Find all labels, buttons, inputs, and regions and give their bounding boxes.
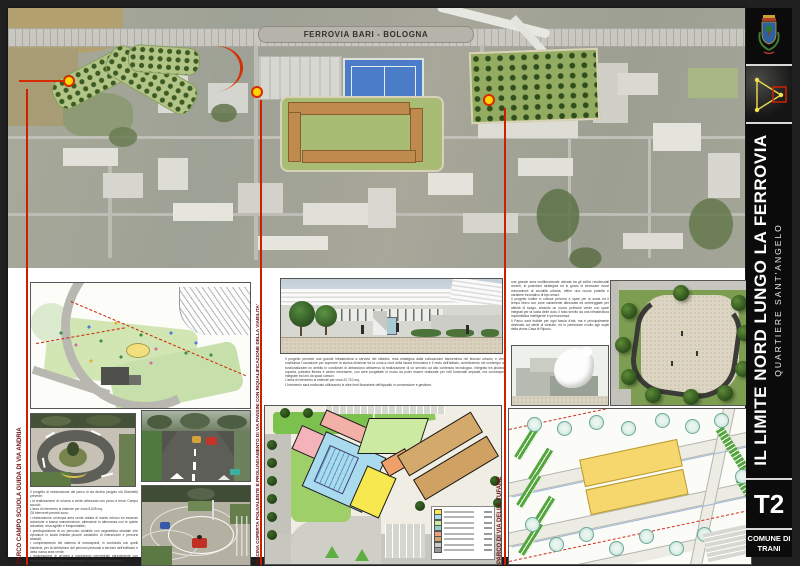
- tree-symbol: [621, 421, 636, 436]
- authority-name: COMUNE DI TRANI: [746, 530, 792, 557]
- tree-symbol: [639, 529, 654, 544]
- render-parco-tufare: [610, 280, 752, 406]
- text-block-piscina: Il progetto prevede una grande infrastru…: [285, 357, 504, 401]
- tree-symbol: [669, 541, 684, 556]
- title-block-sidebar: IL LIMITE NORD LUNGO LA FERROVIA QUARTIE…: [746, 8, 792, 557]
- aerial-photo: FERROVIA BARI - BOLOGNA: [8, 8, 745, 268]
- gravel-band: [512, 396, 609, 406]
- plan-parco-tufare-technical: [508, 408, 752, 565]
- plan-piscina-complex: [264, 405, 502, 565]
- tree: [621, 369, 637, 385]
- tree: [415, 501, 425, 511]
- mini-car-red: [206, 437, 217, 445]
- tree-symbol: [655, 413, 670, 428]
- legend-value-bar: [484, 511, 492, 513]
- legend-label-bar: [444, 511, 474, 513]
- tree-trunk: [300, 326, 302, 336]
- site-plan-campo-scuola: [30, 282, 251, 409]
- parking-row: [325, 406, 445, 414]
- tree: [267, 476, 277, 486]
- tree: [267, 440, 277, 450]
- legend-value-bar: [484, 549, 492, 551]
- person: [466, 325, 469, 334]
- legend-label-bar: [444, 527, 474, 529]
- tree-trunk: [325, 326, 327, 335]
- tree: [621, 303, 637, 319]
- legend-label-bar: [444, 538, 474, 540]
- presentation-board: FERROVIA BARI - BOLOGNA: [0, 0, 800, 566]
- tree: [41, 416, 71, 426]
- sheet: FERROVIA BARI - BOLOGNA: [8, 8, 745, 557]
- tree: [280, 408, 290, 418]
- building-montage: [258, 56, 342, 100]
- text-block-tufare: una grande area multifunzionale ubicata …: [511, 280, 609, 342]
- crest-box: [746, 8, 792, 64]
- courtyard-complex: [280, 96, 444, 172]
- legend-value-bar: [484, 538, 492, 540]
- section-label-piscina: PISCINA COPERTA POLIVALENTE E PROLUNGAME…: [253, 308, 262, 564]
- map-marker-1: [63, 75, 75, 87]
- tree-symbol: [557, 421, 572, 436]
- legend-label-bar: [444, 522, 474, 524]
- tree: [267, 512, 277, 522]
- palm-tree: [67, 442, 79, 456]
- drawing-statue-section: [511, 345, 609, 406]
- building-bar: [302, 150, 416, 163]
- tree: [267, 458, 277, 468]
- stair: [373, 311, 387, 335]
- tree-symbol: [685, 419, 700, 434]
- tree: [267, 494, 277, 504]
- photo-street-mini-cars: [141, 410, 251, 482]
- park-montage-tufare: [469, 48, 600, 124]
- tree: [673, 285, 689, 301]
- tree: [615, 337, 631, 353]
- legend-value-bar: [484, 516, 492, 518]
- sheet-title: IL LIMITE NORD LUNGO LA FERROVIA: [751, 124, 771, 476]
- render-piscina-elevation: [280, 278, 503, 354]
- tree-symbol: [609, 541, 624, 556]
- person: [361, 325, 364, 334]
- sheet-subtitle: QUARTIERE SANT'ANGELO: [773, 124, 783, 476]
- signage: [230, 469, 240, 475]
- legend-label-bar: [444, 533, 474, 535]
- tree-symbol: [549, 537, 564, 552]
- legend-label-bar: [444, 516, 474, 518]
- tree-symbol: [579, 527, 594, 542]
- light-pole: [212, 500, 214, 520]
- kids-car-blue: [160, 522, 170, 529]
- legend-label-bar: [444, 544, 474, 546]
- gravel-ground: [281, 337, 503, 354]
- locator-box: [746, 66, 792, 122]
- railway-banner: FERROVIA BARI - BOLOGNA: [258, 26, 474, 43]
- tree: [86, 415, 121, 426]
- plan-symbols: [31, 283, 251, 409]
- photo-roundabout: [30, 413, 136, 487]
- text-block-campo-scuola: Il progetto di realizzazione del parco d…: [30, 490, 138, 564]
- map-marker-3: [483, 94, 495, 106]
- mini-car-yellow: [192, 436, 201, 443]
- person: [681, 331, 683, 336]
- sheet-code: T2: [746, 480, 792, 528]
- trani-crest-icon: [754, 14, 784, 58]
- tree: [217, 415, 247, 429]
- tree: [645, 387, 661, 403]
- statue-head: [582, 347, 592, 357]
- red-connector-line: [19, 80, 69, 82]
- green-median: [142, 431, 162, 482]
- building-bar: [288, 112, 301, 162]
- tree: [267, 530, 277, 540]
- grass-patch: [188, 501, 213, 511]
- legend-label-bar: [444, 549, 474, 551]
- lane-dash: [192, 474, 195, 482]
- section-label-tufare: PARCO DI VIA DELLE TUFARE: [495, 460, 505, 564]
- building-bar: [288, 102, 410, 115]
- tree: [683, 389, 699, 405]
- locator-triangle-icon: [749, 70, 789, 118]
- legend-row: [434, 548, 492, 554]
- tree: [717, 385, 733, 401]
- legend-value-bar: [484, 544, 492, 546]
- tree: [315, 305, 337, 327]
- white-fence: [236, 516, 251, 556]
- tree-symbol: [589, 415, 604, 430]
- lane-dash: [193, 462, 196, 470]
- shrubs: [446, 329, 474, 337]
- tree-symbol: [525, 517, 540, 532]
- shrubs: [481, 329, 499, 337]
- tree: [731, 295, 747, 311]
- tree: [147, 415, 172, 429]
- plan-legend: [431, 506, 495, 560]
- legend-value-bar: [484, 533, 492, 535]
- tree: [187, 488, 215, 500]
- tree-symbol: [527, 417, 542, 432]
- shrubs: [411, 329, 441, 337]
- legend-value-bar: [484, 527, 492, 529]
- grass-patch: [142, 546, 172, 566]
- parking-lot: [385, 524, 425, 558]
- pool-lanes: [314, 445, 360, 495]
- lane-dash: [194, 449, 196, 456]
- sidewalk: [611, 389, 631, 406]
- legend-value-bar: [484, 522, 492, 524]
- sheet-title-wrap: IL LIMITE NORD LUNGO LA FERROVIA QUARTIE…: [751, 124, 783, 476]
- grass-strip: [119, 434, 136, 487]
- kids-car-driver: [197, 535, 202, 539]
- photo-driving-circuit: [141, 485, 251, 566]
- legend-swatch: [434, 547, 442, 553]
- tree-symbol: [714, 413, 729, 428]
- person: [396, 323, 399, 332]
- person: [671, 361, 673, 366]
- tree: [303, 408, 313, 418]
- kids-car-red: [192, 538, 207, 548]
- red-reference-line-left: [26, 89, 28, 565]
- map-marker-2: [251, 86, 263, 98]
- tree: [180, 413, 210, 429]
- person: [696, 351, 698, 356]
- park-montage-campo-scuola: [127, 44, 201, 77]
- tree: [289, 301, 315, 327]
- yellow-curb: [61, 466, 87, 478]
- section-label-campo-scuola: PARCO CAMPO SCUOLA GUIDA DI VIA ANDRIA: [15, 414, 26, 564]
